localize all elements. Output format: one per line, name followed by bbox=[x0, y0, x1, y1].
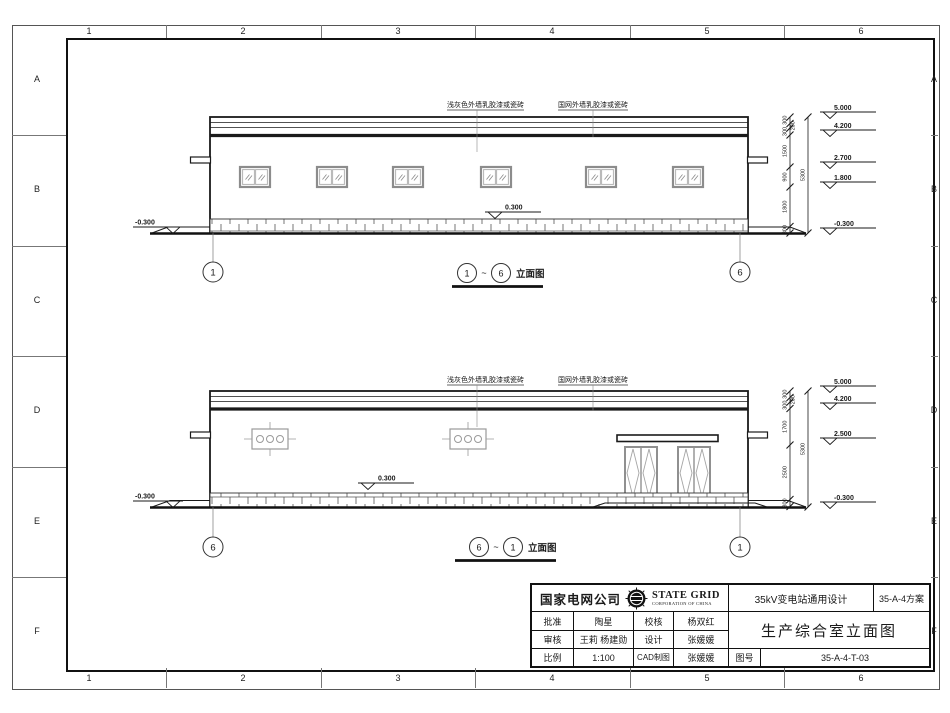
svg-text:5300: 5300 bbox=[801, 169, 807, 181]
svg-text:200: 200 bbox=[791, 395, 797, 404]
state-grid-logo-icon bbox=[625, 587, 648, 610]
elevation-caption: 6 ~ 1 立面图 bbox=[455, 538, 557, 561]
svg-text:立面图: 立面图 bbox=[516, 268, 545, 280]
drawing-number: 35-A-4-T-03 bbox=[761, 649, 929, 666]
drawing-title: 生产综合室立面图 bbox=[729, 612, 929, 649]
double-door bbox=[678, 447, 710, 499]
top-elevation: 浅灰色外墙乳胶漆或瓷砖 国网外墙乳胶漆或瓷砖 5.000 4.200 2.700… bbox=[133, 100, 876, 287]
svg-text:1: 1 bbox=[510, 543, 515, 553]
bottom-elevation: 浅灰色外墙乳胶漆或瓷砖 国网外墙乳胶漆或瓷砖 5.000 4.200 2.500… bbox=[133, 375, 876, 561]
svg-text:~: ~ bbox=[481, 268, 486, 278]
svg-text:1800: 1800 bbox=[783, 201, 789, 213]
apron-left bbox=[152, 227, 210, 233]
svg-text:0.300: 0.300 bbox=[378, 476, 396, 483]
title-block: 国家电网公司 STATE GRID CORPORATION OF CHINA 3… bbox=[530, 583, 931, 668]
dimension-chain: 300 200 300 1700 2500 300 5300 bbox=[783, 388, 812, 511]
window bbox=[673, 167, 703, 187]
brick-plinth bbox=[210, 219, 748, 233]
svg-text:~: ~ bbox=[493, 542, 498, 552]
scupper-right bbox=[748, 157, 768, 163]
brand-name: STATE GRID bbox=[652, 591, 720, 601]
finish-note-left: 浅灰色外墙乳胶漆或瓷砖 bbox=[447, 375, 524, 384]
svg-text:1: 1 bbox=[210, 268, 215, 279]
double-door bbox=[625, 447, 657, 499]
svg-text:200: 200 bbox=[791, 121, 797, 130]
project-cell: 35kV变电站通用设计 bbox=[729, 585, 874, 612]
svg-text:4.200: 4.200 bbox=[834, 396, 852, 403]
finish-note-right: 国网外墙乳胶漆或瓷砖 bbox=[558, 375, 628, 384]
brick-plinth bbox=[210, 493, 748, 507]
svg-text:5300: 5300 bbox=[801, 443, 807, 455]
svg-text:5.000: 5.000 bbox=[834, 379, 852, 386]
cad-name: 张媛媛 bbox=[674, 649, 729, 666]
window bbox=[393, 167, 423, 187]
svg-text:900: 900 bbox=[783, 172, 789, 181]
svg-text:300: 300 bbox=[783, 116, 789, 125]
svg-text:-0.300: -0.300 bbox=[834, 221, 854, 228]
door-canopy bbox=[617, 435, 718, 442]
svg-text:1500: 1500 bbox=[783, 145, 789, 157]
number-label: 图号 bbox=[729, 649, 761, 666]
window bbox=[586, 167, 616, 187]
apron-right bbox=[748, 227, 806, 233]
svg-text:2.700: 2.700 bbox=[834, 155, 852, 162]
window bbox=[481, 167, 511, 187]
scupper-left bbox=[191, 157, 211, 163]
svg-text:0.300: 0.300 bbox=[505, 205, 523, 212]
check-label: 校核 bbox=[634, 612, 674, 631]
scupper-left bbox=[191, 432, 211, 438]
svg-text:6: 6 bbox=[476, 543, 481, 553]
svg-text:1700: 1700 bbox=[783, 421, 789, 433]
design-label: 设计 bbox=[634, 631, 674, 649]
apron-left bbox=[152, 501, 210, 508]
svg-text:4.200: 4.200 bbox=[834, 123, 852, 130]
drawing-sheet: 1 2 3 4 5 6 1 2 3 4 5 6 A B C D E F A B … bbox=[0, 0, 950, 713]
svg-text:300: 300 bbox=[783, 225, 789, 234]
company-cell: 国家电网公司 STATE GRID CORPORATION OF CHINA bbox=[532, 585, 729, 612]
elevation-caption: 1 ~ 6 立面图 bbox=[452, 264, 545, 287]
design-name: 张媛媛 bbox=[674, 631, 729, 649]
svg-text:6: 6 bbox=[210, 543, 215, 554]
window bbox=[240, 167, 270, 187]
check-name: 杨双红 bbox=[674, 612, 729, 631]
scheme-cell: 35-A-4方案 bbox=[874, 585, 929, 612]
approve-label: 批准 bbox=[532, 612, 574, 631]
level-marker: 5.000 4.200 2.500 -0.300 bbox=[820, 379, 876, 509]
scale-label: 比例 bbox=[532, 649, 574, 666]
window bbox=[317, 167, 347, 187]
approve-name: 陶星 bbox=[574, 612, 634, 631]
svg-text:立面图: 立面图 bbox=[528, 542, 557, 554]
finish-note-left: 浅灰色外墙乳胶漆或瓷砖 bbox=[447, 100, 524, 109]
svg-text:-0.300: -0.300 bbox=[135, 494, 155, 501]
svg-text:1: 1 bbox=[464, 269, 469, 279]
review-label: 审核 bbox=[532, 631, 574, 649]
svg-text:1: 1 bbox=[737, 543, 742, 554]
scale-value: 1:100 bbox=[574, 649, 634, 666]
review-name: 王莉 杨建勋 bbox=[574, 631, 634, 649]
svg-text:-0.300: -0.300 bbox=[834, 495, 854, 502]
svg-text:300: 300 bbox=[783, 390, 789, 399]
svg-text:5.000: 5.000 bbox=[834, 105, 852, 112]
svg-text:6: 6 bbox=[737, 268, 742, 279]
level-marker: 5.000 4.200 2.700 1.800 -0.300 bbox=[820, 105, 876, 235]
svg-text:300: 300 bbox=[783, 498, 789, 507]
company-name: 国家电网公司 bbox=[540, 589, 621, 608]
dimension-chain: 300 200 300 1500 900 1800 300 5300 bbox=[783, 114, 812, 237]
cad-label: CAD制图 bbox=[634, 649, 674, 666]
svg-text:-0.300: -0.300 bbox=[135, 220, 155, 227]
svg-text:300: 300 bbox=[783, 127, 789, 136]
brand-subtitle: CORPORATION OF CHINA bbox=[652, 601, 712, 606]
scupper-right bbox=[748, 432, 768, 438]
svg-text:1.800: 1.800 bbox=[834, 175, 852, 182]
svg-text:6: 6 bbox=[498, 269, 503, 279]
finish-note-right: 国网外墙乳胶漆或瓷砖 bbox=[558, 100, 628, 109]
svg-text:2.500: 2.500 bbox=[834, 431, 852, 438]
svg-text:300: 300 bbox=[783, 401, 789, 410]
svg-text:2500: 2500 bbox=[783, 466, 789, 478]
